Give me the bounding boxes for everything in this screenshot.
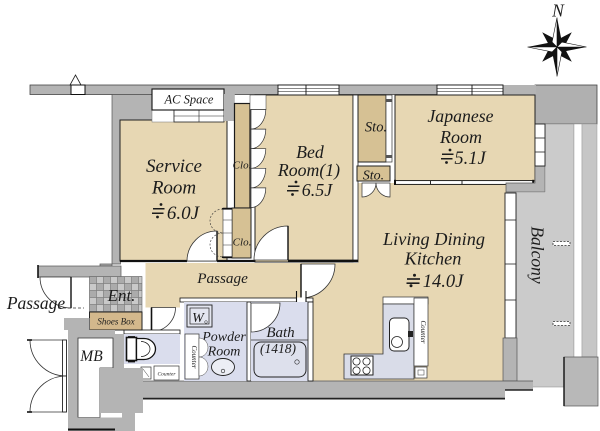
svg-text:6.0J: 6.0J: [167, 203, 201, 224]
svg-text:Kitchen: Kitchen: [404, 249, 462, 269]
svg-text:Passage: Passage: [6, 293, 66, 313]
svg-text:AC Space: AC Space: [164, 93, 214, 107]
svg-text:(1418): (1418): [260, 341, 296, 356]
svg-text:Bath: Bath: [266, 325, 294, 341]
svg-text:MB: MB: [79, 348, 103, 365]
svg-text:Counter: Counter: [419, 321, 427, 344]
svg-text:14.0J: 14.0J: [423, 272, 464, 292]
svg-text:Shoes Box: Shoes Box: [97, 317, 134, 327]
svg-text:W: W: [192, 311, 205, 326]
svg-text:Service: Service: [146, 156, 202, 177]
svg-text:Room: Room: [207, 345, 241, 360]
svg-text:Powder: Powder: [201, 330, 246, 345]
svg-text:Sto.: Sto.: [365, 120, 387, 136]
svg-text:Counter: Counter: [190, 346, 198, 369]
svg-text:Room: Room: [151, 178, 196, 199]
svg-text:Clo.: Clo.: [233, 160, 252, 172]
svg-text:Ent.: Ent.: [107, 286, 136, 305]
svg-text:Room: Room: [439, 127, 482, 147]
svg-text:Room(1): Room(1): [277, 160, 340, 181]
svg-text:N: N: [551, 1, 565, 21]
svg-text:Counter: Counter: [157, 372, 176, 378]
svg-text:Living Dining: Living Dining: [382, 229, 485, 249]
svg-text:Clo.: Clo.: [233, 237, 252, 249]
svg-text:Bed: Bed: [296, 142, 324, 162]
svg-text:6.5J: 6.5J: [302, 180, 334, 200]
svg-text:5.1J: 5.1J: [454, 149, 486, 169]
svg-text:Balcony: Balcony: [528, 226, 548, 284]
svg-text:Sto.: Sto.: [363, 169, 384, 184]
svg-text:Passage: Passage: [196, 270, 248, 287]
svg-text:Japanese: Japanese: [427, 106, 493, 126]
